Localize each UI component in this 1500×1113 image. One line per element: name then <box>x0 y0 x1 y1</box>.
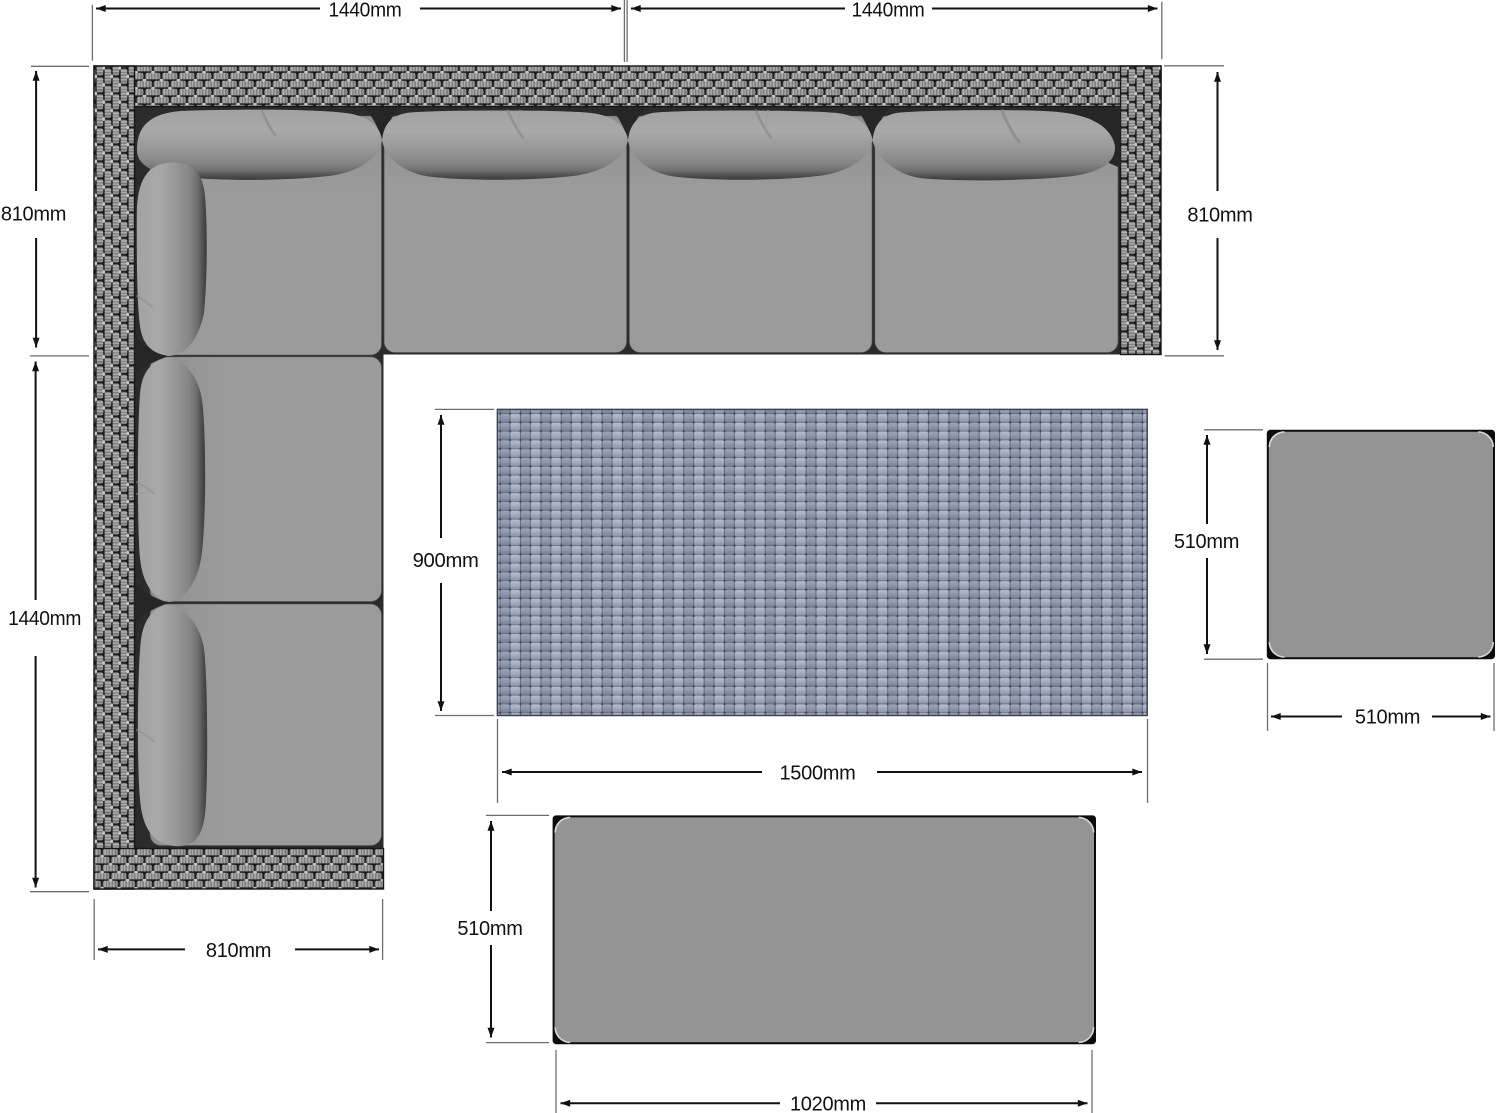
svg-text:1440mm: 1440mm <box>8 608 81 630</box>
svg-text:1020mm: 1020mm <box>790 1093 866 1113</box>
svg-text:810mm: 810mm <box>206 940 271 962</box>
svg-text:810mm: 810mm <box>1 204 66 226</box>
svg-text:510mm: 510mm <box>1174 531 1239 553</box>
svg-text:510mm: 510mm <box>1355 707 1420 729</box>
svg-text:510mm: 510mm <box>457 918 522 940</box>
svg-text:810mm: 810mm <box>1187 205 1252 227</box>
svg-text:1500mm: 1500mm <box>779 763 855 785</box>
svg-text:900mm: 900mm <box>413 550 479 572</box>
svg-text:1440mm: 1440mm <box>329 0 402 22</box>
svg-text:1440mm: 1440mm <box>852 0 925 22</box>
